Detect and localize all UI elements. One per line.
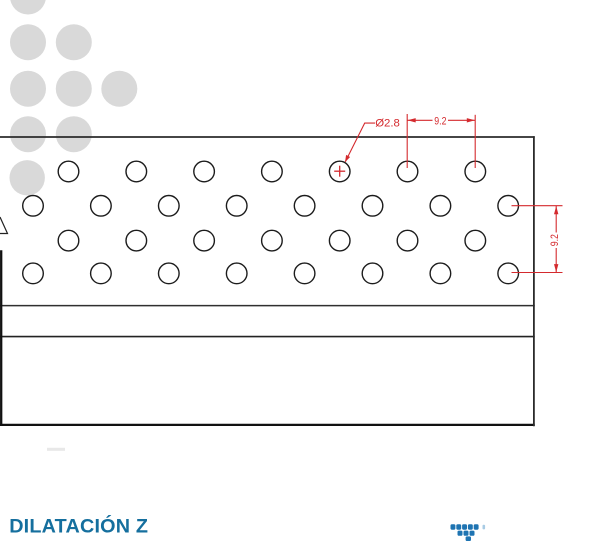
- svg-text:9.2: 9.2: [549, 234, 561, 246]
- svg-text:Ø2.8: Ø2.8: [375, 118, 400, 130]
- svg-text:9.2: 9.2: [434, 115, 446, 127]
- svg-text:DILATACIÓN Z: DILATACIÓN Z: [9, 514, 148, 538]
